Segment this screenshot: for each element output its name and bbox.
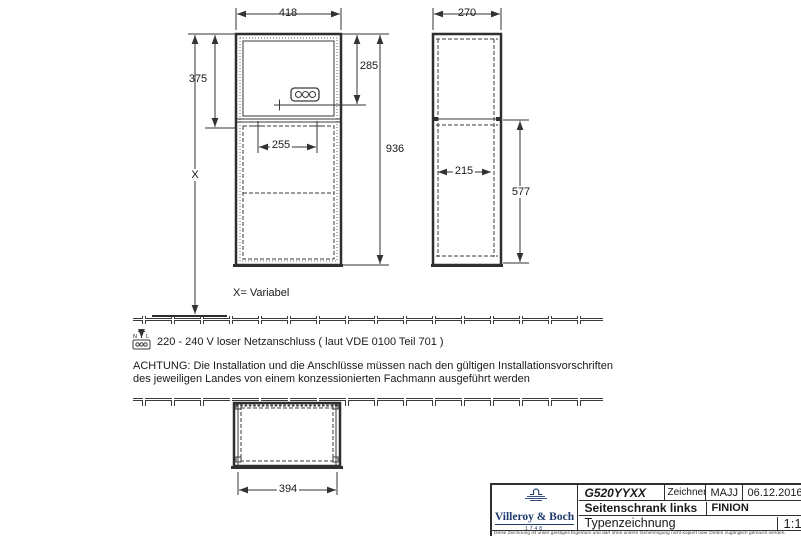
dim-side-depth: 270	[458, 7, 476, 19]
villeroy-boch-emblem-icon	[521, 487, 549, 502]
dim-bottom-width: 394	[277, 483, 299, 495]
dim-front-variable-height: X	[189, 169, 200, 181]
title-row-1: G520YYXX Zeichner MAJJ 06.12.2016	[579, 485, 801, 500]
socket-icon	[274, 88, 319, 111]
dim-front-width: 418	[279, 7, 297, 19]
title-row-3: Typenzeichnung 1:12	[579, 517, 801, 531]
power-note: 220 - 240 V loser Netzanschluss ( laut V…	[157, 336, 444, 348]
title-row-2: Seitenschrank links FINION	[579, 502, 801, 516]
zeichner-label: Zeichner	[664, 485, 705, 500]
side-view-dimensions	[433, 8, 529, 263]
technical-drawing-page: N L 418 270 375 X 285 936 255 215 577 39…	[0, 0, 801, 536]
title-block: Villeroy & Boch 1748 G520YYXX Zeichner M…	[490, 483, 801, 536]
dim-side-lower-height: 577	[510, 186, 532, 198]
dim-front-total-height: 936	[386, 143, 404, 155]
drawing-scale: 1:12	[777, 517, 801, 531]
product-description: Seitenschrank links	[579, 502, 706, 516]
side-view-cabinet	[431, 34, 503, 267]
power-connection-icon: N L	[133, 332, 150, 350]
article-number: G520YYXX	[579, 485, 664, 500]
wall-tile-line-lower	[133, 398, 603, 406]
brand-name: Villeroy & Boch	[495, 511, 574, 525]
drawing-type: Typenzeichnung	[579, 517, 777, 531]
villeroy-boch-logo: Villeroy & Boch 1748	[492, 485, 578, 530]
floor-tile-line-upper	[133, 315, 603, 324]
warning-note-line1: ACHTUNG: Die Installation und die Anschl…	[133, 360, 613, 372]
drawing-canvas: N L	[0, 0, 801, 536]
dim-front-socket-height: 285	[360, 60, 378, 72]
warning-note-line2: des jeweiligen Landes von einem konzessi…	[133, 373, 530, 385]
product-series: FINION	[706, 502, 801, 516]
zeichner-name: MAJJ	[705, 485, 742, 500]
svg-text:N: N	[133, 334, 137, 340]
variable-note: X= Variabel	[233, 287, 289, 299]
drawing-date: 06.12.2016	[742, 485, 801, 500]
dim-side-inner-depth: 215	[453, 165, 475, 177]
dim-front-upper-height: 375	[189, 73, 207, 85]
copyright-disclaimer: Diese Zeichnung ist unser geistiges Eige…	[494, 531, 801, 536]
svg-text:L: L	[146, 334, 149, 340]
bottom-view-cabinet	[229, 401, 345, 495]
dim-front-inner-width: 255	[270, 139, 292, 151]
front-view-dimensions	[188, 8, 389, 314]
